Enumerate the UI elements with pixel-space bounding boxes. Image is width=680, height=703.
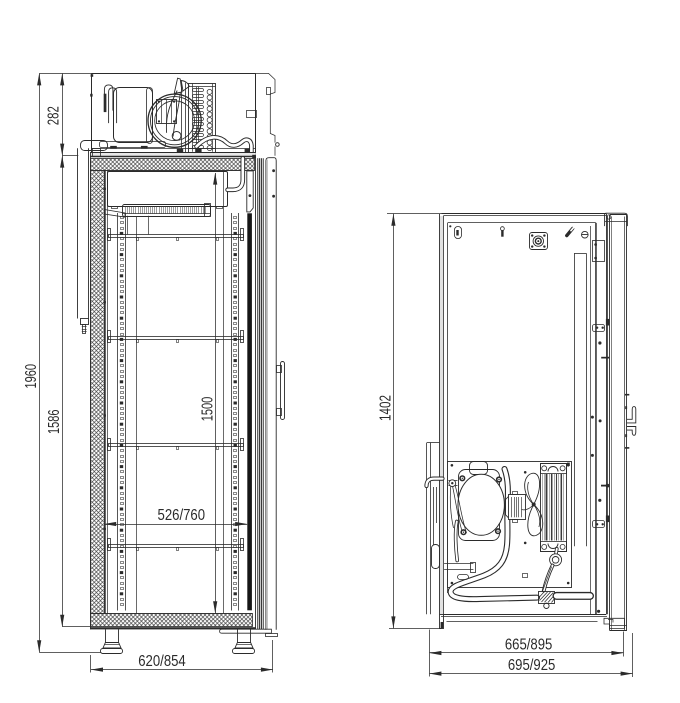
- svg-text:620/854: 620/854: [138, 653, 186, 670]
- svg-text:1500: 1500: [199, 397, 216, 422]
- svg-text:282: 282: [46, 106, 63, 125]
- svg-text:1402: 1402: [378, 395, 395, 421]
- svg-text:1586: 1586: [46, 409, 63, 434]
- svg-text:665/895: 665/895: [505, 636, 553, 653]
- svg-text:1960: 1960: [23, 364, 40, 389]
- svg-text:695/925: 695/925: [508, 657, 556, 674]
- svg-text:526/760: 526/760: [158, 507, 206, 524]
